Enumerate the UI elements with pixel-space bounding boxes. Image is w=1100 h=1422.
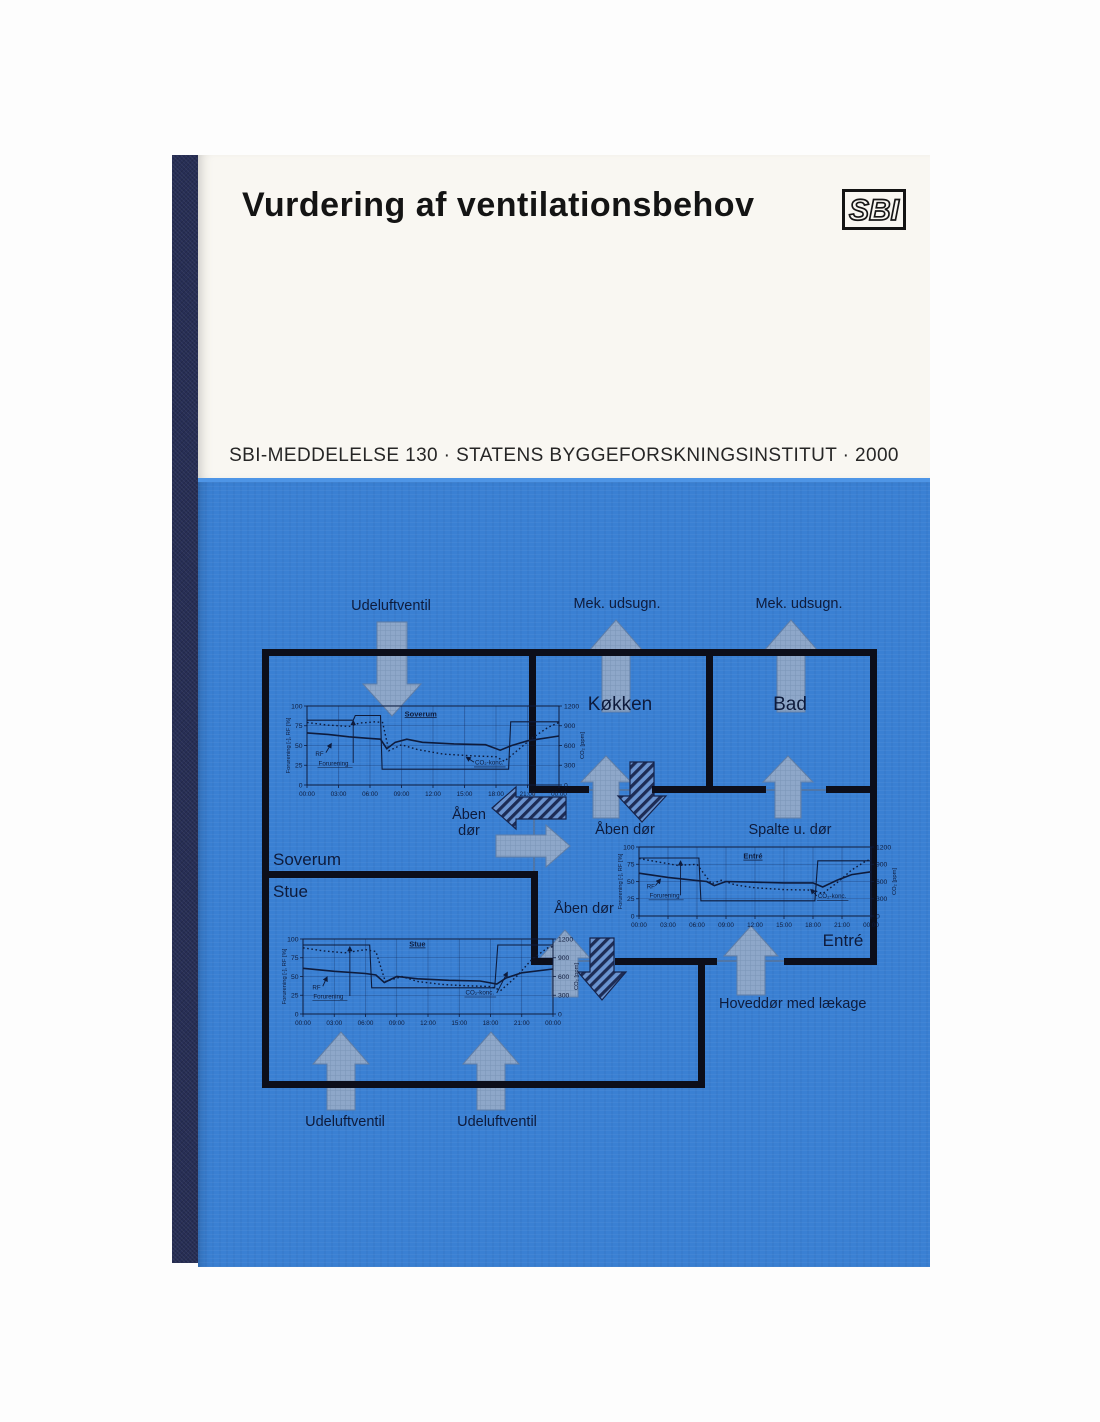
label-mek-udsugn-koekken: Mek. udsugn. <box>573 596 660 612</box>
svg-text:75: 75 <box>627 862 635 869</box>
sbi-logo-graphic: SBI <box>842 189 906 230</box>
arrow-udeluftventil-stue-2 <box>463 1032 519 1110</box>
svg-text:300: 300 <box>876 896 888 903</box>
svg-text:600: 600 <box>564 743 576 750</box>
svg-text:21:00: 21:00 <box>520 791 536 798</box>
label-udeluftventil-top: Udeluftventil <box>351 598 431 614</box>
label-aaben-doer-koekken: Åben dør <box>595 822 655 838</box>
svg-text:75: 75 <box>291 955 299 962</box>
svg-text:00:00: 00:00 <box>551 791 567 798</box>
svg-text:12:00: 12:00 <box>747 922 763 929</box>
svg-text:0: 0 <box>564 782 568 789</box>
svg-text:00:00: 00:00 <box>863 922 879 929</box>
svg-text:18:00: 18:00 <box>488 791 504 798</box>
label-spalte-u-doer: Spalte u. dør <box>748 822 831 838</box>
svg-text:03:00: 03:00 <box>331 791 347 798</box>
label-udeluftventil-bottom-1: Udeluftventil <box>305 1114 385 1130</box>
svg-text:Soverum: Soverum <box>405 709 437 718</box>
svg-text:100: 100 <box>291 703 303 710</box>
svg-text:06:00: 06:00 <box>689 922 705 929</box>
svg-text:00:00: 00:00 <box>631 922 647 929</box>
svg-text:09:00: 09:00 <box>394 791 410 798</box>
svg-text:0: 0 <box>299 782 303 789</box>
book-spine <box>172 155 201 1263</box>
svg-text:18:00: 18:00 <box>805 922 821 929</box>
svg-text:Stue: Stue <box>409 940 425 949</box>
svg-text:15:00: 15:00 <box>776 922 792 929</box>
svg-text:CO₂-konc.: CO₂-konc. <box>466 990 495 997</box>
label-udeluftventil-bottom-2: Udeluftventil <box>457 1114 537 1130</box>
svg-text:900: 900 <box>564 723 576 730</box>
svg-text:21:00: 21:00 <box>834 922 850 929</box>
svg-text:12:00: 12:00 <box>425 791 441 798</box>
stue-inset-chart: 02550751000300600900120000:0003:0006:000… <box>276 930 586 1038</box>
svg-text:0: 0 <box>558 1011 562 1018</box>
svg-text:03:00: 03:00 <box>326 1020 342 1027</box>
svg-text:25: 25 <box>295 763 303 770</box>
soverum-inset-chart: 02550751000300600900120000:0003:0006:000… <box>280 697 592 809</box>
svg-text:Forurening: Forurening <box>319 760 349 767</box>
svg-text:300: 300 <box>564 763 576 770</box>
svg-text:Forurening [-], RF [%]: Forurening [-], RF [%] <box>286 717 292 773</box>
svg-text:1200: 1200 <box>876 844 891 851</box>
label-aaben-doer-stue: Åben dør <box>554 901 614 917</box>
svg-text:Forurening: Forurening <box>650 892 680 899</box>
svg-text:1200: 1200 <box>564 703 579 710</box>
svg-text:100: 100 <box>623 844 635 851</box>
svg-text:50: 50 <box>291 974 299 981</box>
svg-text:600: 600 <box>558 974 570 981</box>
svg-text:Forurening: Forurening <box>313 993 343 1000</box>
svg-text:25: 25 <box>291 993 299 1000</box>
label-room-soverum: Soverum <box>273 850 341 870</box>
svg-text:900: 900 <box>558 955 570 962</box>
svg-text:09:00: 09:00 <box>718 922 734 929</box>
sbi-logo-text: SBI <box>849 194 900 227</box>
svg-text:CO₂ [ppm]: CO₂ [ppm] <box>892 868 898 895</box>
svg-text:00:00: 00:00 <box>545 1020 561 1027</box>
svg-text:RF: RF <box>312 984 320 991</box>
svg-text:0: 0 <box>876 913 880 920</box>
label-room-bad: Bad <box>773 694 807 716</box>
svg-text:21:00: 21:00 <box>514 1020 530 1027</box>
book-title: Vurdering af ventilationsbehov <box>242 186 754 225</box>
svg-text:CO₂-konc.: CO₂-konc. <box>475 759 504 766</box>
svg-text:06:00: 06:00 <box>362 791 378 798</box>
svg-text:50: 50 <box>295 743 303 750</box>
svg-text:25: 25 <box>627 896 635 903</box>
arrow-up-spalte-into-bad <box>763 756 813 818</box>
svg-text:600: 600 <box>876 879 888 886</box>
svg-text:50: 50 <box>627 879 635 886</box>
svg-text:15:00: 15:00 <box>457 791 473 798</box>
svg-text:0: 0 <box>631 913 635 920</box>
svg-text:Forurening [-], RF [%]: Forurening [-], RF [%] <box>282 948 288 1004</box>
svg-text:75: 75 <box>295 723 303 730</box>
svg-text:00:00: 00:00 <box>299 791 315 798</box>
svg-text:15:00: 15:00 <box>451 1020 467 1027</box>
book-cover-scan: Vurdering af ventilationsbehov SBI SBI-M… <box>0 0 1100 1422</box>
label-mek-udsugn-bad: Mek. udsugn. <box>755 596 842 612</box>
sbi-logo: SBI <box>842 189 906 230</box>
svg-text:Entré: Entré <box>743 852 762 861</box>
svg-text:CO₂-konc.: CO₂-konc. <box>818 893 847 900</box>
svg-text:03:00: 03:00 <box>660 922 676 929</box>
svg-text:900: 900 <box>876 862 888 869</box>
imprint-line: SBI-MEDDELELSE 130 · STATENS BYGGEFORSKN… <box>198 445 930 467</box>
svg-text:300: 300 <box>558 993 570 1000</box>
svg-text:06:00: 06:00 <box>358 1020 374 1027</box>
label-room-stue: Stue <box>273 882 308 902</box>
label-aaben-doer-soverum: Åben dør <box>443 808 495 839</box>
label-room-koekken: Køkken <box>588 694 652 716</box>
svg-text:CO₂ [ppm]: CO₂ [ppm] <box>580 732 586 759</box>
svg-text:1200: 1200 <box>558 936 573 943</box>
arrow-udeluftventil-stue-1 <box>313 1032 369 1110</box>
label-hoveddoer: Hoveddør med lækage <box>719 996 867 1012</box>
svg-text:CO₂ [ppm]: CO₂ [ppm] <box>574 963 580 990</box>
label-room-entre: Entré <box>823 931 864 951</box>
svg-text:09:00: 09:00 <box>389 1020 405 1027</box>
svg-text:12:00: 12:00 <box>420 1020 436 1027</box>
svg-text:Forurening [-], RF [%]: Forurening [-], RF [%] <box>618 853 624 909</box>
svg-text:100: 100 <box>287 936 299 943</box>
entre-inset-chart: 02550751000300600900120000:0003:0006:000… <box>612 838 904 940</box>
svg-text:0: 0 <box>295 1011 299 1018</box>
svg-text:00:00: 00:00 <box>295 1020 311 1027</box>
svg-text:18:00: 18:00 <box>483 1020 499 1027</box>
svg-text:RF: RF <box>315 751 323 758</box>
svg-text:RF: RF <box>647 883 655 890</box>
